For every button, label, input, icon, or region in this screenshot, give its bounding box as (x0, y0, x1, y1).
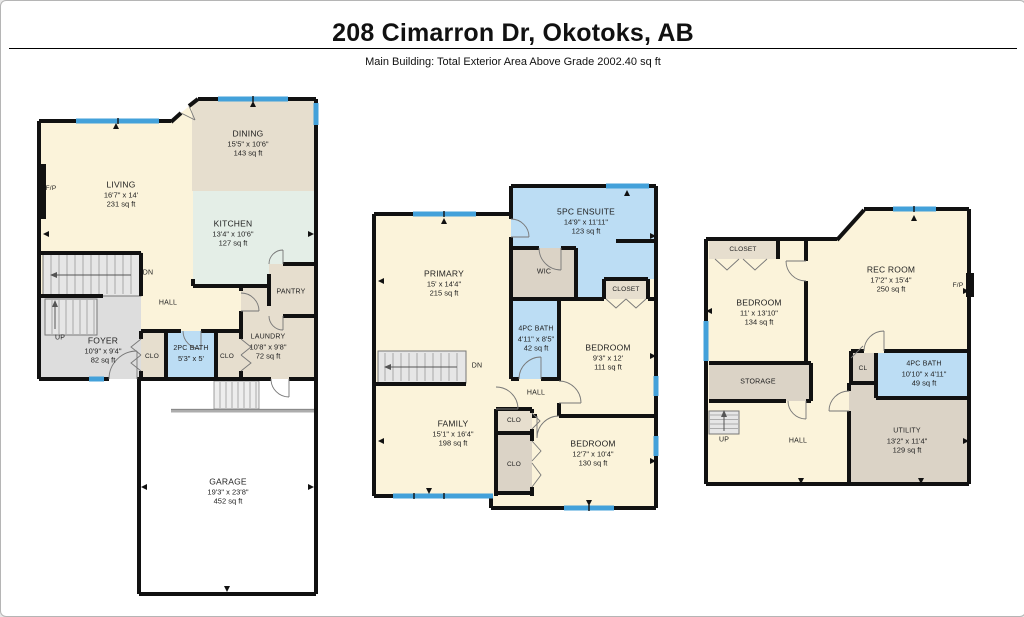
room-label-bedroom-3: BEDROOM 11' x 13'10" 134 sq ft (736, 297, 781, 326)
floor3-drawing (701, 201, 975, 491)
room-label-pantry: PANTRY (277, 289, 306, 298)
room-label-family: FAMILY 15'1" x 16'4" 198 sq ft (432, 418, 473, 447)
room-label-clo-right: CLO (220, 353, 234, 361)
room-label-laundry: LAUNDRY 10'8" x 9'8" 72 sq ft (250, 333, 287, 361)
room-label-4pc-bath-3: 4PC BATH 10'10" x 4'11" 49 sq ft (902, 360, 947, 388)
room-label-clo-left: CLO (145, 353, 159, 361)
label-fireplace-3: F/P (953, 282, 964, 290)
room-label-hall2: HALL (527, 390, 545, 399)
room-label-closet-3: CLOSET (729, 246, 756, 254)
room-label-clo-a: CLO (507, 417, 521, 425)
label-stairs-dn-1: DN (143, 270, 154, 279)
room-label-foyer: FOYER 10'9" x 9'4" 82 sq ft (85, 335, 122, 364)
room-label-bedroom-upper: BEDROOM 9'3" x 12' 111 sq ft (585, 342, 630, 371)
room-label-rec-room: REC ROOM 17'2" x 15'4" 250 sq ft (867, 264, 915, 293)
room-label-ensuite: 5PC ENSUITE 14'9" x 11'11" 123 sq ft (557, 206, 615, 235)
floor3-fireplace-block (966, 273, 974, 297)
room-label-utility: UTILITY 13'2" x 11'4" 129 sq ft (887, 427, 928, 455)
floor2-stairs-down (378, 351, 466, 383)
floor3-plan (701, 201, 975, 491)
room-label-4pc-bath-2: 4PC BATH 4'11" x 8'5" 42 sq ft (518, 325, 554, 353)
room-label-living: LIVING 16'7" x 14' 231 sq ft (104, 179, 138, 208)
room-label-clo-b: CLO (507, 461, 521, 469)
floor3-stairs-up (709, 410, 739, 434)
room-label-cl: CL (859, 365, 868, 373)
room-label-storage: STORAGE (740, 379, 776, 388)
floor1-stairs-up (45, 299, 97, 335)
room-label-hall1: HALL (159, 300, 177, 309)
label-stairs-up-3: UP (719, 437, 729, 446)
room-label-closet-2: CLOSET (612, 286, 639, 294)
room-label-hall3: HALL (789, 438, 807, 447)
label-stairs-up-1: UP (55, 335, 65, 344)
page-title: 208 Cimarron Dr, Okotoks, AB (1, 19, 1024, 48)
floor1-stairs-down (43, 253, 141, 296)
page-subtitle: Main Building: Total Exterior Area Above… (1, 56, 1024, 68)
room-label-bedroom-lower: BEDROOM 12'7" x 10'4" 130 sq ft (570, 438, 615, 467)
room-label-wic: WIC (537, 269, 551, 278)
label-fireplace-1: F/P (46, 185, 57, 193)
room-label-primary: PRIMARY 15' x 14'4" 215 sq ft (424, 268, 464, 297)
room-label-kitchen: KITCHEN 13'4" x 10'6" 127 sq ft (212, 218, 253, 247)
room-label-garage: GARAGE 19'3" x 23'8" 452 sq ft (207, 476, 248, 505)
header-divider (9, 48, 1017, 49)
room-label-2pc-bath: 2PC BATH 5'3" x 5' (173, 345, 208, 363)
room-label-dining: DINING 15'5" x 10'6" 143 sq ft (227, 128, 268, 157)
label-stairs-dn-2: DN (472, 363, 483, 372)
floorplan-page: 208 Cimarron Dr, Okotoks, AB Main Buildi… (0, 0, 1024, 617)
